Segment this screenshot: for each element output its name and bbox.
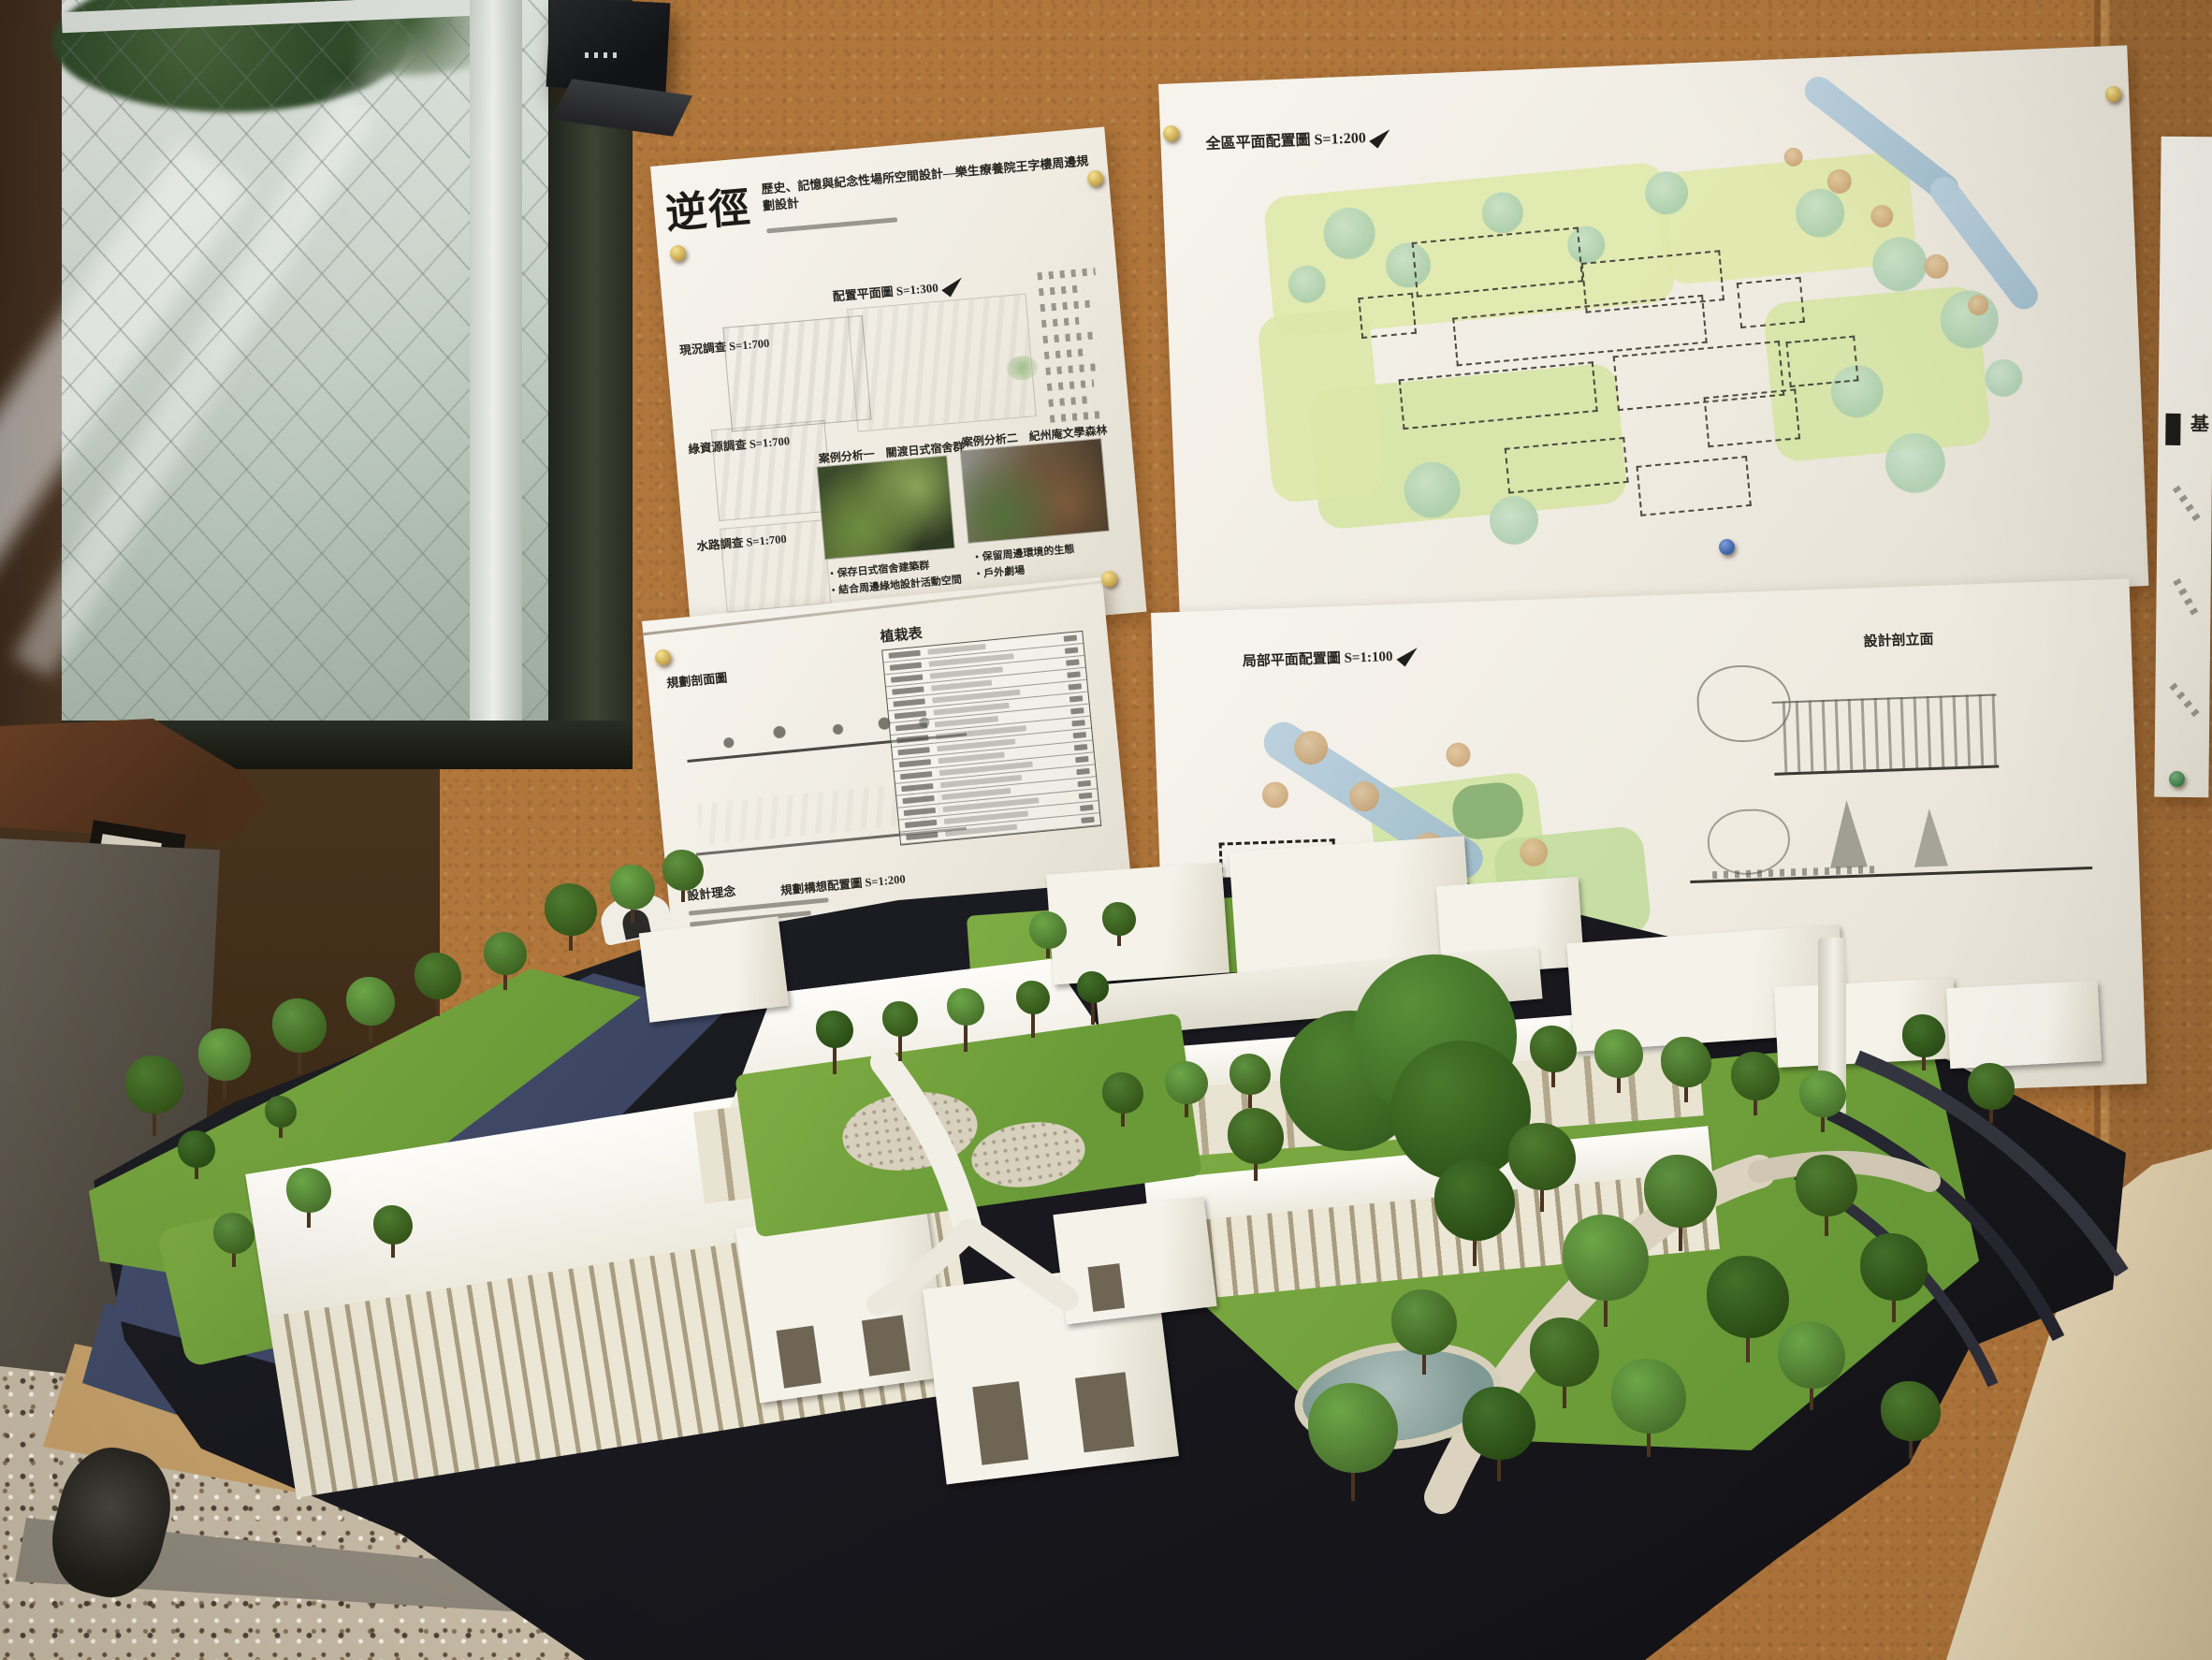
sketch-water-survey <box>720 519 831 612</box>
siteplan-tree-blob <box>1871 236 1928 292</box>
siteplan-tree-blob <box>1985 358 2024 398</box>
push-pin <box>1101 571 1117 587</box>
siteplan-watercolor <box>1217 113 2096 606</box>
elevation-sketch-conifer-2 <box>1913 808 1948 866</box>
building-small-annex <box>639 916 790 1023</box>
speaker-box <box>546 0 671 93</box>
poster-logo: 逆徑 <box>662 173 753 240</box>
siteplan-building-outline <box>1737 277 1805 328</box>
elevation-sketch-colonnade <box>1772 694 2000 776</box>
building-far-right <box>1946 981 2102 1069</box>
siteplan-stream-tree <box>1924 254 1949 279</box>
poster-title: 歷史、記憶與紀念性場所空間設計—樂生療養院王字樓周邊規劃設計 <box>761 152 1099 213</box>
model-large-tree <box>1280 954 1533 1216</box>
far-right-fragment: 基 <box>2184 414 2211 432</box>
north-arrow-icon <box>1396 642 1419 666</box>
push-pin-blue <box>1719 539 1735 555</box>
poster-left-top: 逆徑 歷史、記憶與紀念性場所空間設計—樂生療養院王字樓周邊規劃設計 配置平面圖 … <box>650 127 1146 651</box>
far-right-sketch <box>2173 486 2202 524</box>
building-front-box-3 <box>1053 1197 1216 1325</box>
push-pin-green <box>2169 771 2185 787</box>
poster-credit-line <box>766 210 908 240</box>
elevation-sketch-conifer-1 <box>1827 799 1867 867</box>
far-right-ink-block <box>2165 414 2180 445</box>
north-arrow-icon <box>941 272 964 297</box>
planting-table: 植栽表 <box>880 607 1113 918</box>
siteplan-building-outline <box>1358 293 1417 339</box>
case-one-photo <box>818 457 954 560</box>
sketch-green-survey <box>711 420 833 521</box>
poster-right-top: 全區平面配置圖 S=1:200 <box>1158 45 2148 624</box>
building-back-right-2 <box>1774 978 1957 1068</box>
push-pin <box>655 649 671 665</box>
window-mullion <box>470 0 522 769</box>
siteplan-building-outline <box>1704 388 1801 447</box>
label-section: 規劃剖面圖 <box>665 668 728 692</box>
far-right-sketch <box>2173 578 2200 618</box>
label-concept-plan: 規劃構想配置圖 S=1:200 <box>779 868 906 898</box>
push-pin <box>670 245 686 261</box>
case-two-bullet-2: ・戶外劇場 <box>973 562 1026 582</box>
partialplan-tree-circle <box>1261 781 1288 808</box>
poster-far-right: 基 <box>2154 137 2212 798</box>
siteplan-building-outline <box>1636 456 1751 517</box>
planting-table-grid <box>881 631 1101 846</box>
far-right-sketch <box>2169 682 2201 719</box>
push-pin <box>2105 86 2121 102</box>
push-pin <box>1163 125 1179 141</box>
speaker-logo-dots <box>585 52 617 58</box>
case-two-bullet-1: ・保留周邊環境的生態 <box>971 541 1075 565</box>
window-security-mesh <box>62 0 633 769</box>
model-chimney <box>1818 938 1846 1115</box>
push-pin <box>1087 170 1103 186</box>
elevation-title: 設計剖立面 <box>1863 629 1934 651</box>
window <box>62 0 633 769</box>
partialplan-title: 局部平面配置圖 S=1:100 <box>1242 643 1413 671</box>
siteplan-building-outline <box>1785 335 1858 387</box>
elevation-sketch-tree-2 <box>1707 808 1791 876</box>
photo-scene: 逆徑 歷史、記憶與紀念性場所空間設計—樂生療養院王字樓周邊規劃設計 配置平面圖 … <box>0 0 2212 1660</box>
partialplan-tree-circle <box>1446 742 1471 767</box>
building-back-block-1 <box>1046 863 1230 985</box>
case-two-photo <box>961 439 1109 543</box>
